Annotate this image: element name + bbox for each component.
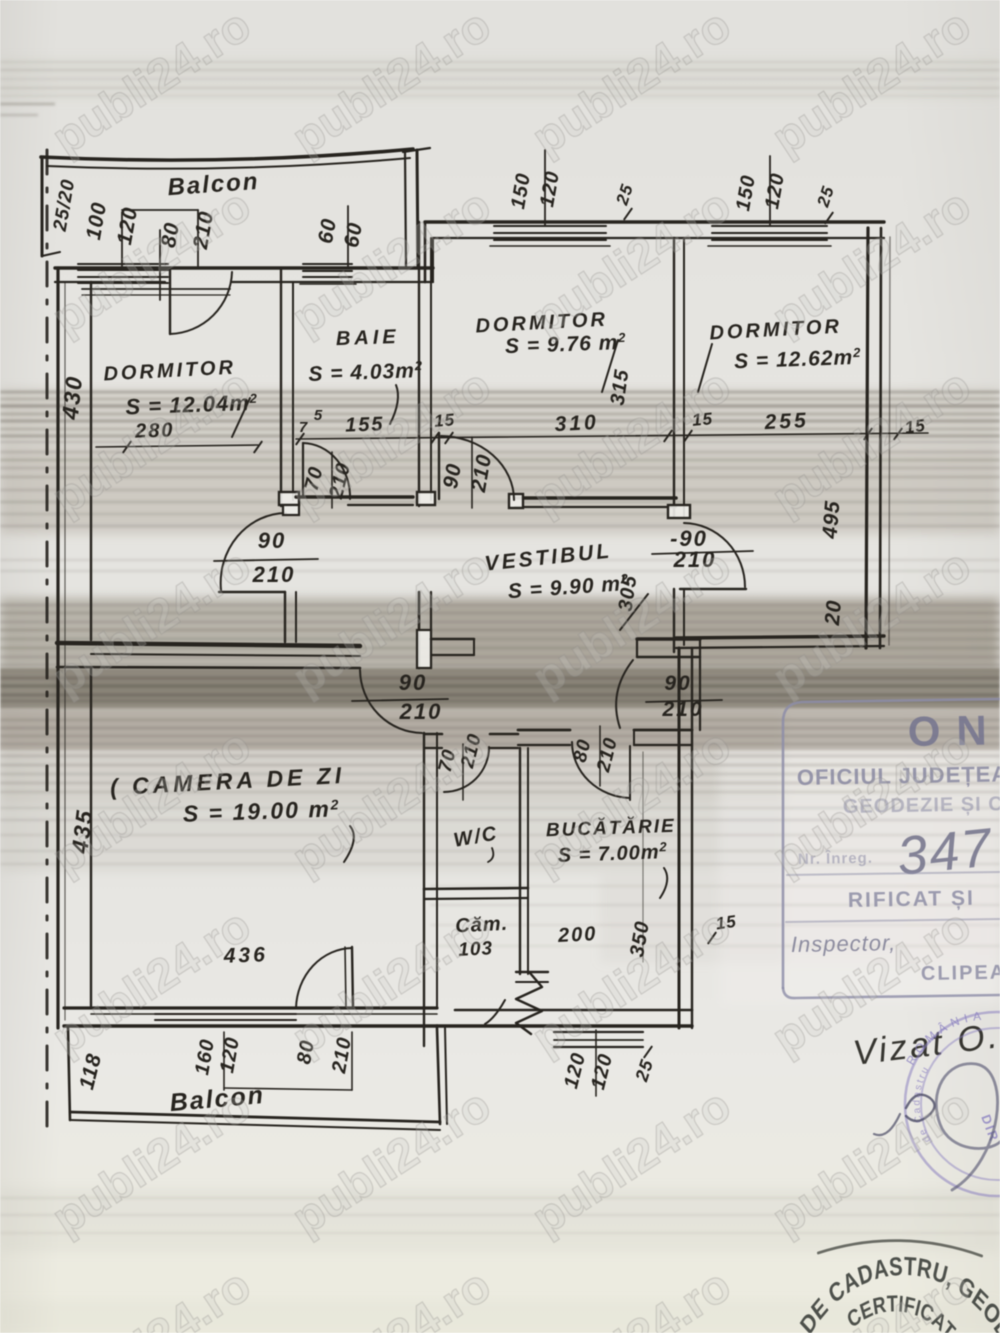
svg-text:495: 495 — [818, 499, 844, 540]
svg-text:310: 310 — [554, 411, 599, 436]
svg-text:430: 430 — [57, 374, 88, 422]
svg-text:210: 210 — [399, 699, 443, 724]
svg-text:90: 90 — [399, 670, 427, 695]
svg-text:90: 90 — [258, 528, 286, 553]
svg-text:210: 210 — [252, 562, 296, 587]
svg-text:347: 347 — [894, 817, 996, 887]
svg-text:S = 12.62m2: S = 12.62m2 — [734, 345, 862, 373]
svg-text:60: 60 — [314, 216, 341, 245]
svg-text:60: 60 — [340, 220, 367, 249]
svg-text:5: 5 — [314, 407, 323, 424]
svg-text:200: 200 — [556, 923, 597, 947]
svg-text:210: 210 — [661, 698, 703, 721]
svg-text:255: 255 — [763, 409, 809, 434]
svg-text:BAIE: BAIE — [336, 326, 401, 350]
svg-text:90: 90 — [439, 461, 466, 490]
svg-text:S = 4.03m2: S = 4.03m2 — [308, 358, 423, 386]
